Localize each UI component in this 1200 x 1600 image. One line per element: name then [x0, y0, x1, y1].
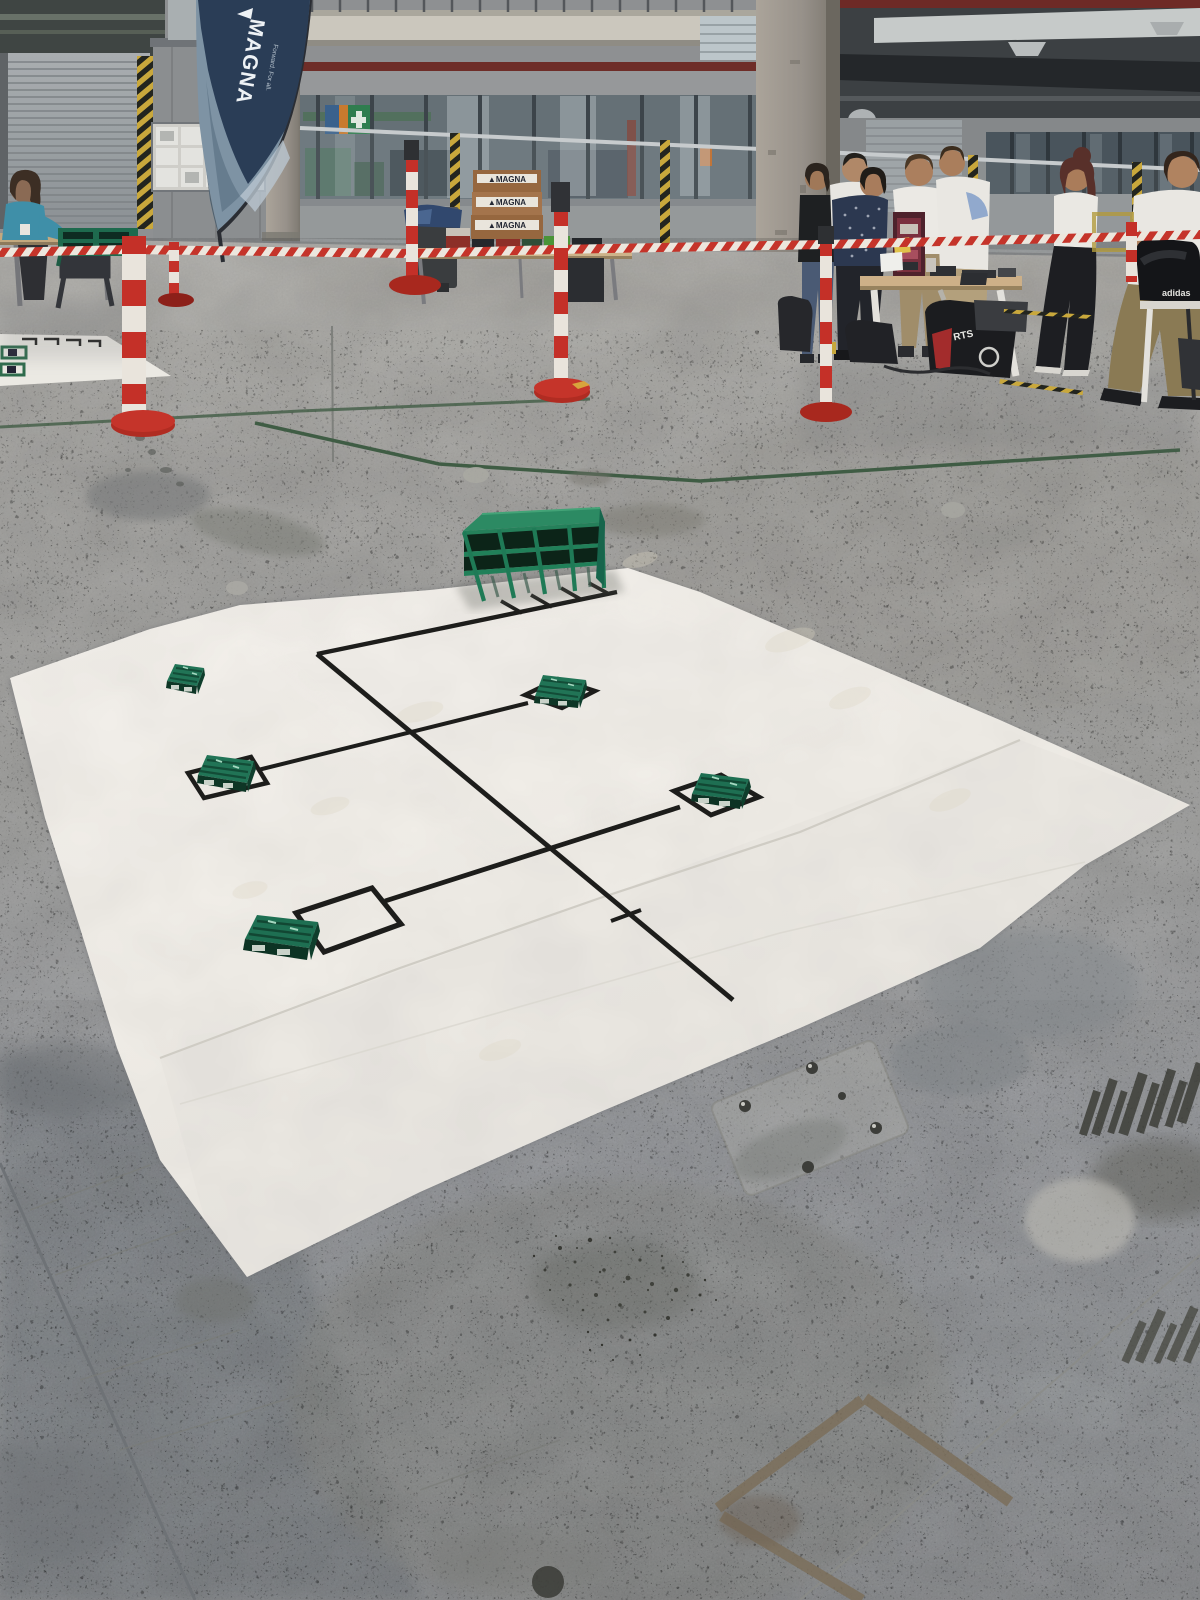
svg-text:▲MAGNA: ▲MAGNA — [488, 175, 526, 184]
svg-text:▲MAGNA: ▲MAGNA — [488, 221, 526, 230]
svg-text:▲MAGNA: ▲MAGNA — [488, 198, 526, 207]
svg-text:adidas: adidas — [1162, 288, 1191, 298]
